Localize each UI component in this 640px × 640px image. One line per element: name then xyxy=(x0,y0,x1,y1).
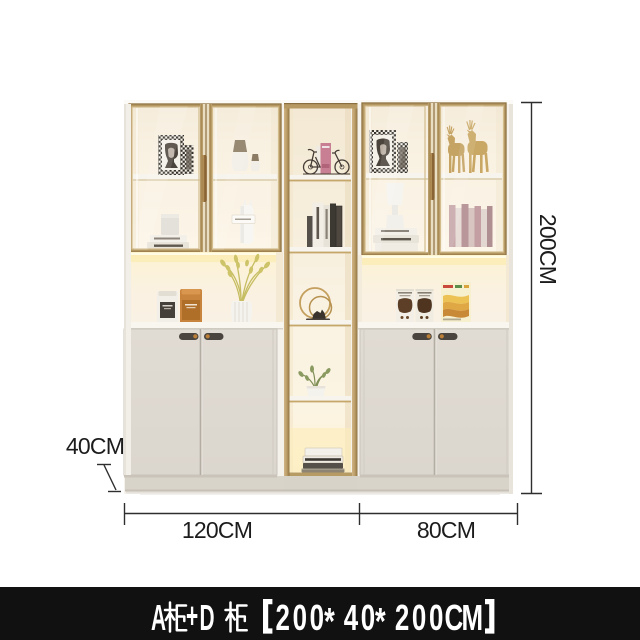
svg-text:80CM: 80CM xyxy=(417,517,475,543)
svg-text:0: 0 xyxy=(412,598,426,638)
svg-text:+: + xyxy=(186,596,198,636)
svg-text:40CM: 40CM xyxy=(66,433,124,459)
svg-text:D: D xyxy=(200,598,215,638)
svg-text:200CM: 200CM xyxy=(535,214,561,284)
svg-text:A: A xyxy=(151,598,166,638)
svg-text:0: 0 xyxy=(429,598,443,638)
svg-text:C: C xyxy=(445,598,464,638)
svg-text:2: 2 xyxy=(275,598,289,638)
svg-text:M: M xyxy=(462,598,484,638)
svg-text:4: 4 xyxy=(344,598,359,638)
svg-text:*: * xyxy=(375,601,386,640)
svg-text:2: 2 xyxy=(395,598,409,638)
svg-text:0: 0 xyxy=(310,598,324,638)
svg-text:120CM: 120CM xyxy=(182,517,252,543)
svg-text:0: 0 xyxy=(361,598,375,638)
svg-text:*: * xyxy=(324,601,335,640)
svg-text:0: 0 xyxy=(293,598,307,638)
